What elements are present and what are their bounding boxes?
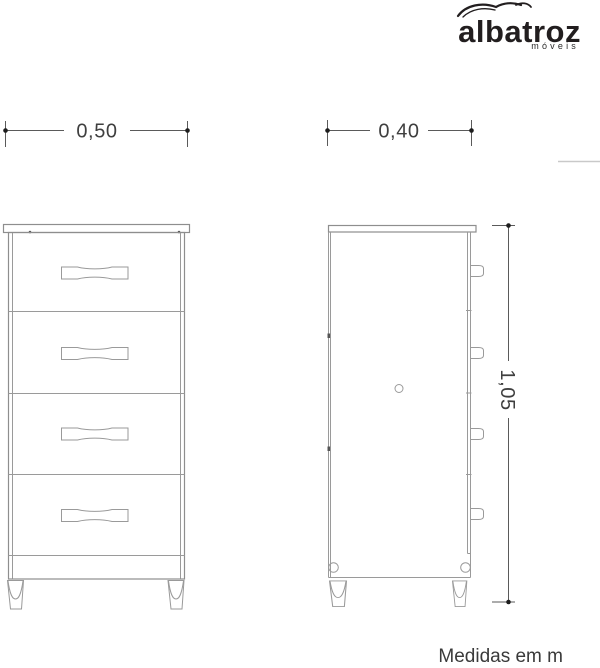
drawer-handle <box>62 510 129 522</box>
dimension-endpoint <box>506 223 511 228</box>
front-body <box>9 233 185 580</box>
dimension-endpoint <box>469 128 474 133</box>
units-note: Medidas em m <box>438 646 563 667</box>
side-view <box>328 226 484 607</box>
dimension-endpoint <box>185 128 190 133</box>
front-foot-left <box>8 581 24 610</box>
dimension-endpoint <box>325 128 330 133</box>
dimension-endpoint <box>506 600 511 605</box>
side-top-board <box>329 226 477 233</box>
handle-profile <box>471 266 484 277</box>
handle-profile <box>471 429 484 440</box>
technical-drawing-page: albatroz móveis 0,50 0,40 <box>0 0 600 668</box>
drawer-handle <box>62 348 129 360</box>
cam-hole <box>395 385 403 393</box>
drawer-handle <box>62 428 129 440</box>
front-top-board <box>4 225 190 233</box>
front-view <box>4 225 190 610</box>
brand-tagline: móveis <box>531 41 579 51</box>
dimension-total-height: 1,05 <box>492 223 518 604</box>
handle-profile <box>471 509 484 520</box>
dimension-side-depth: 0,40 <box>325 120 474 146</box>
dimension-value-side-depth: 0,40 <box>378 121 419 143</box>
front-foot-right <box>168 581 184 610</box>
drawing-svg: albatroz móveis 0,50 0,40 <box>0 0 600 668</box>
dimension-front-width: 0,50 <box>3 121 190 148</box>
handle-profile <box>471 348 484 359</box>
bottom-fitting-hole <box>461 563 471 573</box>
brand-logo: albatroz móveis <box>458 3 581 51</box>
fitting-mark <box>328 334 331 339</box>
fitting-mark <box>328 447 331 452</box>
side-foot-right <box>452 581 466 607</box>
drawer-handle <box>62 267 129 279</box>
dimension-endpoint <box>3 128 8 133</box>
dimension-value-height: 1,05 <box>496 369 518 410</box>
side-foot-left <box>330 581 347 607</box>
dimension-value-front-width: 0,50 <box>76 121 117 143</box>
